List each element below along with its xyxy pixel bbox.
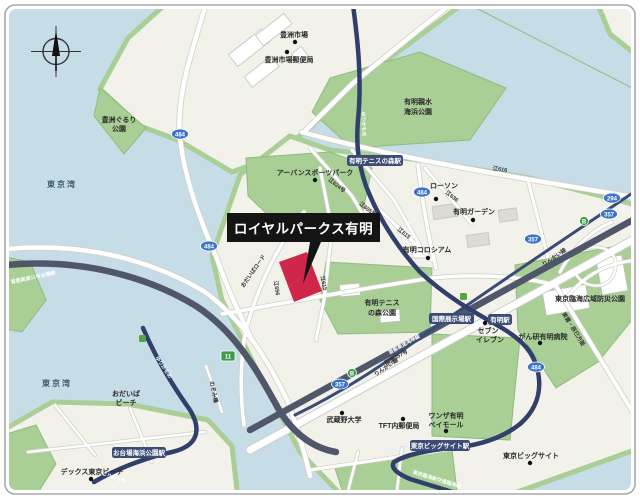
building-block (498, 208, 517, 222)
poi-label: 東京ビッグサイト (503, 451, 559, 460)
shield-letter: B (582, 220, 587, 226)
station-marker (139, 335, 146, 342)
poi-label: おだいば (112, 389, 140, 398)
poi-label: ベイモール (429, 421, 464, 429)
poi-dot (340, 411, 344, 415)
poi-dot (293, 40, 297, 44)
shield-number: 11 (225, 355, 232, 361)
poi-dot (528, 461, 532, 465)
poi-dot (285, 50, 289, 54)
shield-number: 294 (607, 197, 618, 203)
station-marker (460, 293, 467, 300)
poi-label: ローソン (430, 182, 458, 190)
poi-label: セブン (478, 326, 499, 335)
poi-dot (401, 417, 405, 421)
poi-label: デックス東京ビーチ (61, 467, 124, 476)
poi-label: 豊洲市場郵便局 (265, 55, 314, 64)
shield-number: 357 (528, 238, 539, 244)
poi-dot (444, 429, 448, 433)
poi-dot (483, 321, 487, 325)
tennis-forest-park-area (320, 262, 432, 334)
poi-label: 有明ガーデン (453, 207, 495, 216)
poi-label: 有明親水 (404, 97, 433, 106)
poi-label: アーバンスポーツパーク (277, 168, 354, 177)
map-svg: ゆりかもめ ゆりかもめ ゆりかもめ ゆりかもめ 首都高速11号台場線 首都高速湾… (0, 0, 640, 499)
shield-number: 484 (531, 366, 542, 372)
callout-title: ロイヤルパークス有明 (234, 221, 373, 237)
poi-label: TFT内郵便局 (379, 421, 420, 430)
poi-label: 有明テニス (365, 298, 400, 307)
station-name: 東京ビッグサイト駅 (411, 441, 470, 450)
poi-label: 海浜公園 (404, 107, 432, 116)
poi-label: 公園 (112, 124, 126, 133)
shield-number: 357 (335, 383, 346, 389)
station-name: 有明駅 (490, 315, 510, 324)
poi-label: ビーチ (116, 398, 137, 407)
poi-dot (89, 477, 93, 481)
shield-number: 357 (604, 213, 615, 219)
poi-label: 豊洲市場 (280, 30, 308, 39)
shield-letter: B (350, 372, 355, 378)
poi-dot (471, 218, 475, 222)
yurikamome-label: ゆりかもめ (359, 111, 367, 136)
building-block (466, 233, 489, 248)
poi-label: 豊洲ぐるり (102, 115, 137, 124)
shield-number: 484 (417, 191, 428, 197)
poi-label: イレブン (476, 335, 504, 344)
poi-label: 武蔵野大学 (327, 415, 362, 424)
poi-dot (538, 341, 542, 345)
station-name: お台場海浜公園駅 (113, 448, 166, 457)
shield-number: 484 (204, 245, 215, 251)
poi-label: 有明コロシアム (403, 245, 452, 254)
poi-label: の森公園 (368, 308, 396, 317)
poi-dot (313, 178, 317, 182)
station-name: 有明テニスの森駅 (349, 156, 402, 165)
sea-label: 東京湾 (47, 179, 77, 189)
poi-dot (426, 256, 430, 260)
poi-label: 東京臨海広域防災公園 (555, 294, 625, 303)
poi-label: ワンザ有明 (429, 411, 464, 420)
poi-dot (434, 197, 438, 201)
station-name: 国際展示場駅 (432, 314, 472, 323)
sea-label: 東京湾 (42, 378, 72, 388)
shield-number: 484 (175, 133, 186, 139)
poi-label: がん研有明病院 (519, 332, 568, 341)
map-canvas: ゆりかもめ ゆりかもめ ゆりかもめ ゆりかもめ 首都高速11号台場線 首都高速湾… (0, 0, 640, 499)
